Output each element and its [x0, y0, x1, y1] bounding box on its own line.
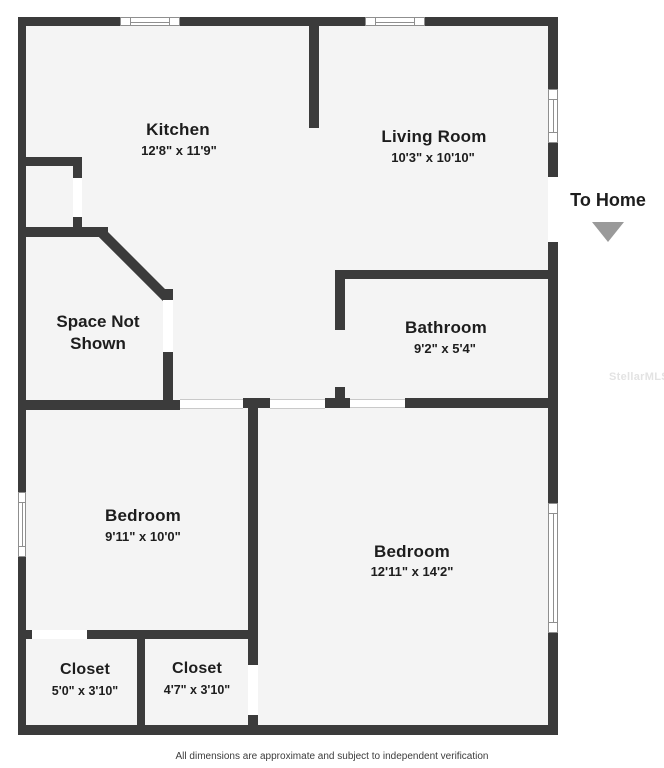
room-dims-bedroom-1: 9'11" x 10'0" [105, 529, 181, 544]
room-dims-living-room: 10'3" x 10'10" [391, 150, 475, 165]
window-icon-bedroom-1-left [18, 492, 26, 557]
room-label-bathroom: Bathroom [405, 318, 487, 338]
wall-bedroom-divider-upper [248, 408, 258, 665]
door-opening-to-home [548, 177, 558, 242]
wall-closet-divider [137, 639, 145, 725]
wall-exterior-left-upper [18, 26, 26, 492]
wall-space-not-shown-right-upper [163, 289, 173, 300]
wall-space-not-shown-top [26, 227, 108, 237]
footer-disclaimer: All dimensions are approximate and subje… [0, 751, 664, 762]
room-label-living-room: Living Room [381, 127, 486, 147]
watermark-text: StellarMLS [609, 371, 664, 383]
wall-bathroom-left-foot [325, 398, 350, 408]
room-label-space-not-shown: Space Not Shown [36, 311, 160, 355]
wall-exterior-right-1 [548, 26, 558, 89]
wall-exterior-right-2 [548, 143, 558, 177]
hallway-opening-bedroom-1 [180, 399, 243, 409]
window-icon-living-right [548, 89, 558, 143]
window-icon-bedroom-2-right [548, 503, 558, 633]
wall-bathroom-left-upper [335, 279, 345, 330]
wall-bedroom-divider-cap [243, 398, 270, 408]
wall-alcove-right-upper [73, 157, 82, 178]
room-label-closet-1: Closet [60, 661, 110, 679]
door-opening-alcove [73, 178, 82, 217]
room-label-closet-2: Closet [172, 660, 222, 678]
wall-exterior-right-3 [548, 242, 558, 503]
room-dims-closet-2: 4'7" x 3'10" [164, 683, 230, 697]
wall-bathroom-top [335, 270, 558, 279]
window-icon-living-top [365, 17, 425, 26]
room-dims-bathroom: 9'2" x 5'4" [414, 341, 476, 356]
room-label-bedroom-1: Bedroom [105, 506, 181, 526]
wall-space-not-shown-bottom [18, 400, 180, 410]
wall-bathroom-bottom [405, 398, 558, 408]
door-opening-bathroom [350, 399, 405, 408]
wall-exterior-bottom [18, 725, 558, 735]
door-opening-closet-1 [32, 630, 87, 639]
room-label-kitchen: Kitchen [146, 120, 210, 140]
wall-kitchen-living-divider [309, 26, 319, 128]
to-home-label: To Home [570, 190, 646, 211]
room-label-bedroom-2: Bedroom [374, 542, 450, 562]
window-icon-kitchen [120, 17, 180, 26]
wall-exterior-left-lower [18, 557, 26, 725]
hallway-opening-bedroom-2 [270, 399, 325, 409]
floorplan-canvas: Kitchen 12'8" x 11'9" Living Room 10'3" … [0, 0, 664, 768]
room-dims-kitchen: 12'8" x 11'9" [141, 143, 217, 158]
wall-bedroom-divider-lower [248, 715, 258, 725]
room-dims-bedroom-2: 12'11" x 14'2" [371, 564, 454, 579]
wall-exterior-right-4 [548, 633, 558, 725]
wall-exterior-top [18, 17, 558, 26]
wall-closet-top [87, 630, 248, 639]
to-home-arrow-icon [592, 222, 624, 242]
door-opening-space-not-shown [163, 300, 173, 352]
door-opening-closet-2 [248, 665, 258, 715]
floor-area [18, 17, 558, 735]
room-dims-closet-1: 5'0" x 3'10" [52, 684, 118, 698]
